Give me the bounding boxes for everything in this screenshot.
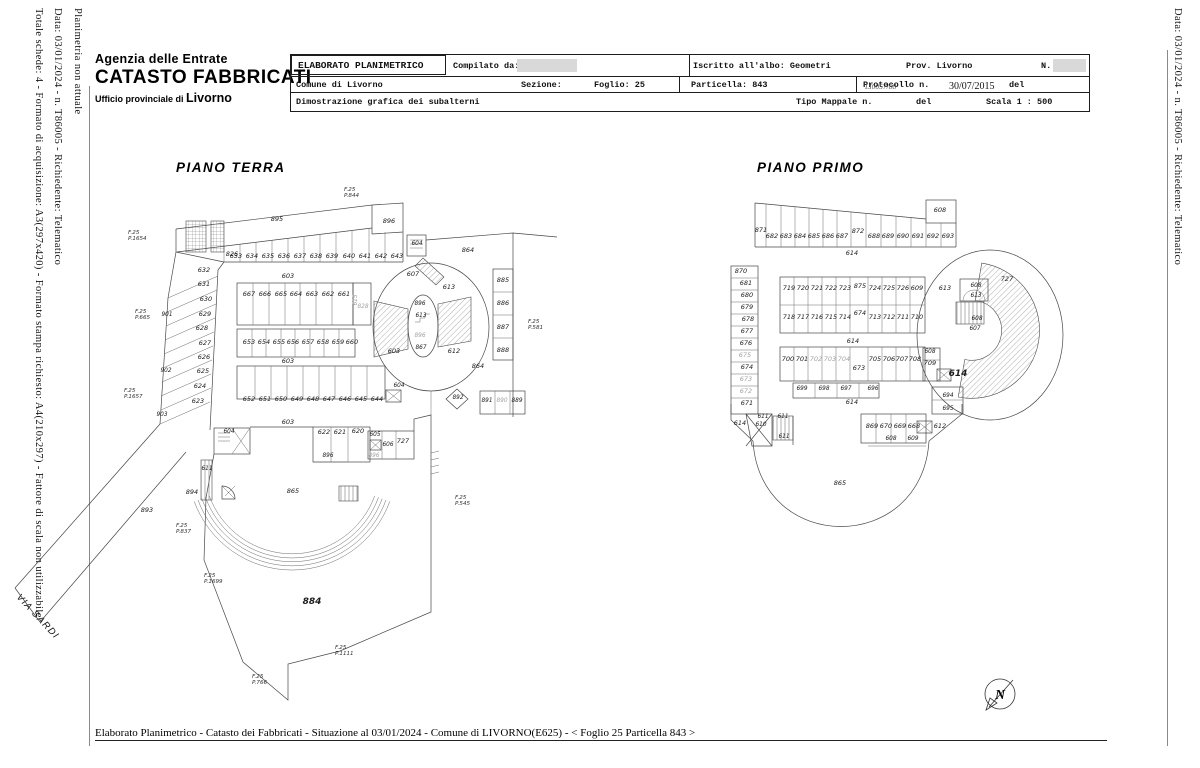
subalterno-label: 651: [259, 395, 271, 403]
subalterno-label: 714: [839, 313, 851, 321]
subalterno-label: 865: [287, 487, 299, 495]
subalterno-label: 677: [741, 327, 754, 335]
subalterno-label: 896: [383, 217, 395, 225]
subalterno-label: 723: [839, 284, 851, 292]
subalterno-label: 603: [388, 347, 400, 355]
subalterno-label: 625: [197, 367, 209, 375]
subalterno-label: 605: [369, 432, 380, 438]
subalterno-label: 608: [934, 206, 946, 214]
subalterno-label: 670: [880, 422, 892, 430]
subalterno-label: 675: [739, 351, 751, 359]
subalterno-label: 654: [258, 338, 270, 346]
subalterno-label: 864: [462, 246, 474, 254]
subalterno-label: 896: [322, 453, 333, 459]
subalterno-label: 884: [303, 597, 322, 607]
subalterno-label: 720: [797, 284, 809, 292]
subalterno-label: 700: [782, 355, 794, 363]
subalterno-label: 609: [911, 284, 923, 292]
subalterno-label: 694: [942, 393, 953, 399]
subalterno-label: 885: [497, 276, 509, 284]
subalterno-label: 892: [452, 395, 463, 401]
subalterno-label: 608: [970, 283, 981, 289]
subalterno-label: 663: [306, 290, 318, 298]
subalterno-label: 711: [897, 313, 909, 321]
subalterno-label: 693: [942, 232, 954, 240]
subalterno-label: 706: [883, 355, 895, 363]
footer-caption: Elaborato Planimetrico - Catasto dei Fab…: [95, 727, 1107, 741]
north-arrow: N: [985, 679, 1015, 710]
subalterno-label: 680: [741, 291, 753, 299]
subalterno-label: 626: [198, 353, 210, 361]
subalterno-label: 722: [825, 284, 837, 292]
subalterno-label: 611: [201, 466, 212, 472]
subalterno-label: 641: [359, 252, 371, 260]
subalterno-label: 895: [271, 215, 283, 223]
subalterno-label: 886: [497, 299, 509, 307]
subalterno-label: 698: [818, 386, 829, 392]
subalterno-label: 630: [200, 295, 212, 303]
subalterno-label: 634: [246, 252, 258, 260]
subalterno-label: 889: [511, 398, 522, 404]
subalterno-label: 643: [391, 252, 403, 260]
subalterno-label: 624: [194, 382, 206, 390]
subalterno-label: 612: [934, 422, 946, 430]
subalterno-label: 721: [811, 284, 823, 292]
subalterno-label: 696: [867, 386, 878, 392]
subalterno-label: 658: [317, 338, 329, 346]
subalterno-label: 653: [243, 338, 255, 346]
subalterno-label: 705: [869, 355, 881, 363]
subalterno-label: 710: [911, 313, 923, 321]
subalterno-label: 622: [318, 428, 330, 436]
subalterno-label: 867: [415, 345, 426, 351]
subalterno-label: 703: [824, 355, 836, 363]
subalterno-label: 614: [734, 419, 746, 427]
subalterno-label: 901: [161, 312, 172, 318]
parcel-annotation: F.25P.581: [528, 319, 543, 331]
subalterno-label: 707: [896, 355, 909, 363]
subalterno-label: 896: [414, 333, 425, 339]
subalterno-label: 726: [897, 284, 909, 292]
subalterno-label: 610: [755, 422, 766, 428]
subalterno-label: 659: [332, 338, 344, 346]
subalterno-label: 613: [970, 293, 981, 299]
subalterno-label: 903: [156, 412, 167, 418]
subalterno-label: 869: [866, 422, 878, 430]
subalterno-label: 614: [846, 249, 858, 257]
subalterno-label: 613: [415, 313, 426, 319]
parcel-annotation: F.25P.1654: [128, 230, 147, 242]
subalterno-label: 604: [393, 383, 404, 389]
subalterno-label: 683: [780, 232, 792, 240]
subalterno-label: 632: [198, 266, 210, 274]
subalterno-label: 890: [496, 398, 507, 404]
parcel-annotation: F.25P.1111: [335, 645, 354, 657]
subalterno-label: 639: [326, 252, 338, 260]
subalterno-label: 629: [199, 310, 211, 318]
subalterno-label: 607: [969, 326, 980, 332]
subalterno-label: 603: [282, 418, 294, 426]
subalterno-label: 662: [322, 290, 334, 298]
subalterno-label: 635: [262, 252, 274, 260]
subalterno-label: 672: [740, 387, 752, 395]
subalterno-label: 679: [741, 303, 753, 311]
subalterno-label: 648: [307, 395, 319, 403]
subalterno-label: 613: [443, 283, 455, 291]
subalterno-label: 682: [766, 232, 778, 240]
subalterno-label: 631: [198, 280, 210, 288]
parcel-annotation: F.25P.665: [135, 309, 150, 321]
subalterno-label: 691: [912, 232, 924, 240]
subalterno-label: 608: [971, 316, 982, 322]
subalterno-label: 724: [869, 284, 881, 292]
subalterno-label: 689: [882, 232, 894, 240]
subalterno-label: 611: [778, 434, 789, 440]
subalterno-label: 612: [448, 347, 460, 355]
subalterno-label: 704: [838, 355, 850, 363]
subalterno-label: 681: [740, 279, 752, 287]
subalterno-label: 656: [287, 338, 299, 346]
subalterno-label: 621: [334, 428, 346, 436]
parcel-annotation: F.25P.766: [252, 674, 267, 686]
piano-primo-plan: [731, 200, 1063, 527]
subalterno-label: 611: [777, 414, 788, 420]
subalterno-label: 709: [924, 359, 936, 367]
subalterno-label: 637: [294, 252, 307, 260]
subalterno-label: 893: [141, 506, 153, 514]
subalterno-label: 676: [740, 339, 752, 347]
subalterno-label: 701: [796, 355, 808, 363]
subalterno-label: 608: [924, 349, 935, 355]
subalterno-label: 657: [302, 338, 315, 346]
subalterno-label: 896: [414, 301, 425, 307]
subalterno-label: 666: [259, 290, 271, 298]
subalterno-label: 712: [883, 313, 895, 321]
subalterno-label: 614: [847, 337, 859, 345]
subalterno-label: 727: [1001, 275, 1014, 283]
subalterno-label: 687: [836, 232, 849, 240]
subalterno-label: 638: [310, 252, 322, 260]
subalterno-label: 607: [407, 270, 420, 278]
subalterno-label: 636: [278, 252, 290, 260]
subalterno-label: 645: [355, 395, 367, 403]
parcel-annotation: F.25P.837: [176, 523, 191, 535]
subalterno-label: 669: [894, 422, 906, 430]
subalterno-label: 727: [397, 437, 410, 445]
subalterno-label: 891: [481, 398, 492, 404]
subalterno-label: 828: [357, 304, 368, 310]
subalterno-label: 628: [196, 324, 208, 332]
subalterno-label: 690: [897, 232, 909, 240]
subalterno-label: 604: [411, 241, 422, 247]
subalterno-label: 678: [742, 315, 754, 323]
subalterno-label: 692: [927, 232, 939, 240]
subalterno-label: 623: [192, 397, 204, 405]
subalterno-label: 649: [291, 395, 303, 403]
subalterno-label: 875: [854, 282, 866, 290]
subalterno-label: 902: [160, 368, 171, 374]
subalterno-label: 671: [741, 399, 753, 407]
subalterno-label: 668: [908, 422, 920, 430]
subalterno-label: 684: [794, 232, 806, 240]
north-letter: N: [994, 688, 1006, 703]
subalterno-label: 685: [808, 232, 820, 240]
subalterno-label: 660: [346, 338, 358, 346]
subalterno-label: 888: [497, 346, 509, 354]
subalterno-label: 604: [223, 429, 234, 435]
subalterno-label: 613: [939, 284, 951, 292]
subalterno-label: 870: [735, 267, 747, 275]
parcel-annotation: F.25P.1699: [204, 573, 223, 585]
subalterno-label: 725: [883, 284, 895, 292]
subalterno-label: 664: [290, 290, 302, 298]
parcel-annotation: F.25P.545: [455, 495, 470, 507]
subalterno-label: 674: [741, 363, 753, 371]
subalterno-label: 608: [885, 436, 896, 442]
subalterno-label: 695: [942, 406, 953, 412]
subalterno-label: 642: [375, 252, 387, 260]
subalterno-label: 627: [199, 339, 212, 347]
subalterno-label: 673: [740, 375, 752, 383]
subalterno-label: 640: [343, 252, 355, 260]
subalterno-label: 688: [868, 232, 880, 240]
parcel-annotation: F.25P.844: [344, 187, 359, 199]
subalterno-label: 674: [854, 309, 866, 317]
subalterno-label: 864: [472, 362, 484, 370]
subalterno-label: 719: [783, 284, 795, 292]
subalterno-label: 717: [797, 313, 810, 321]
subalterno-label: 667: [243, 290, 256, 298]
subalterno-label: 614: [949, 369, 968, 379]
subalterno-label: 708: [909, 355, 921, 363]
subalterno-label: 718: [783, 313, 795, 321]
subalterno-label: 611: [757, 414, 768, 420]
subalterno-label: 644: [371, 395, 383, 403]
subalterno-label: 647: [323, 395, 336, 403]
piano-primo-labels: 8716826836846856866878726886896906916926…: [734, 206, 1014, 487]
subalterno-label: 609: [907, 436, 918, 442]
subalterno-label: 646: [339, 395, 351, 403]
subalterno-label: 894: [186, 488, 198, 496]
subalterno-label: 872: [852, 227, 864, 235]
subalterno-label: 713: [869, 313, 881, 321]
subalterno-label: 673: [853, 364, 865, 372]
subalterno-label: 715: [825, 313, 837, 321]
cadastral-document-page: Planimetria non attuale Data: 03/01/2024…: [0, 0, 1200, 768]
subalterno-label: 606: [382, 442, 393, 448]
subalterno-label: 665: [275, 290, 287, 298]
subalterno-label: 650: [275, 395, 287, 403]
subalterno-label: 716: [811, 313, 823, 321]
subalterno-label: 686: [822, 232, 834, 240]
plans-drawing: 8958968266336346356366376386396406416426…: [0, 0, 1200, 768]
subalterno-label: 620: [352, 427, 364, 435]
parcel-annotation: F.25P.1657: [124, 388, 143, 400]
subalterno-label: 633: [230, 252, 242, 260]
subalterno-label: 614: [846, 398, 858, 406]
subalterno-label: 697: [840, 386, 851, 392]
subalterno-label: 603: [282, 357, 294, 365]
subalterno-label: 896: [368, 453, 379, 459]
subalterno-label: 887: [497, 323, 510, 331]
subalterno-label: 865: [834, 479, 846, 487]
subalterno-label: 652: [243, 395, 255, 403]
subalterno-label: 655: [273, 338, 285, 346]
subalterno-label: 603: [282, 272, 294, 280]
subalterno-label: 699: [796, 386, 807, 392]
subalterno-label: 661: [338, 290, 350, 298]
subalterno-label: 702: [810, 355, 822, 363]
